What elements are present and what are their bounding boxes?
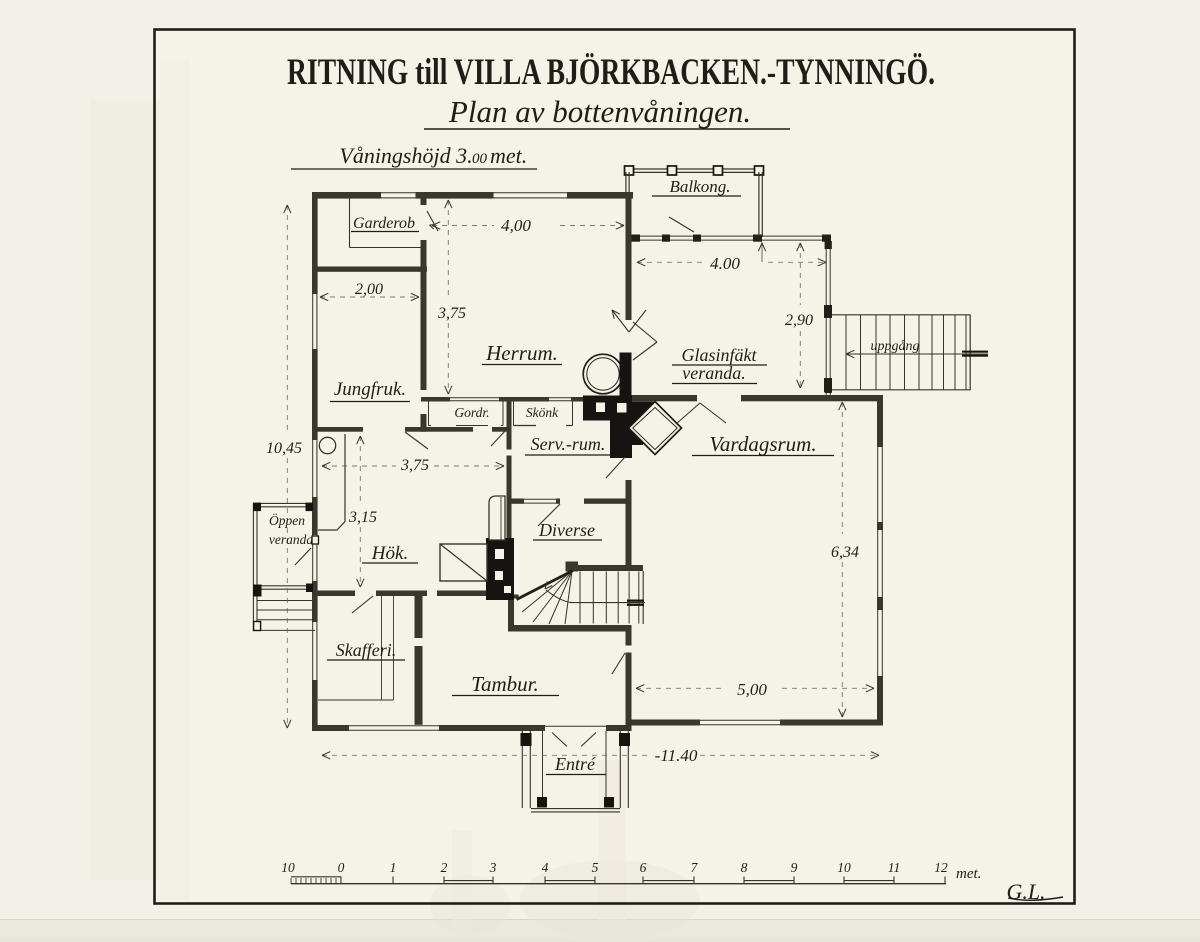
svg-text:10: 10 [837,860,851,875]
svg-text:5,00: 5,00 [737,680,767,699]
svg-text:4: 4 [542,860,549,875]
svg-text:Skönk: Skönk [526,405,559,420]
svg-text:RІTNІNG till VІLLA BJÖRKBACKEN: RІTNІNG till VІLLA BJÖRKBACKEN.-TYNNІNGÖ… [287,52,935,93]
svg-text:6: 6 [640,860,647,875]
svg-text:Plan av bottenvåningen.: Plan av bottenvåningen. [448,94,751,129]
svg-text:8: 8 [741,860,748,875]
svg-text:6,34: 6,34 [831,544,859,561]
svg-text:9: 9 [791,860,798,875]
svg-text:2,90: 2,90 [785,312,813,329]
svg-text:Öppen: Öppen [269,513,305,528]
svg-text:veranda: veranda [269,532,313,547]
svg-text:Jungfruk.: Jungfruk. [334,379,406,400]
svg-text:met.: met. [956,866,981,882]
svg-text:4,00: 4,00 [501,216,531,235]
svg-text:Skafferi.: Skafferi. [336,640,397,660]
svg-text:Hök.: Hök. [371,543,408,564]
svg-text:3,15: 3,15 [348,509,377,526]
svg-text:12: 12 [934,860,948,875]
svg-text:met.: met. [490,143,527,168]
svg-text:Gordr.: Gordr. [454,405,489,420]
svg-text:Balkong.: Balkong. [670,177,731,196]
svg-text:uppgång: uppgång [871,339,920,354]
svg-text:1: 1 [390,860,397,875]
svg-text:5: 5 [592,860,599,875]
svg-text:Entré: Entré [554,754,596,774]
svg-text:3,75: 3,75 [400,457,429,474]
svg-text:10: 10 [281,860,295,875]
svg-text:2,00: 2,00 [355,281,383,298]
svg-text:-11.40: -11.40 [655,746,698,765]
svg-text:11: 11 [888,860,901,875]
svg-text:Garderob: Garderob [353,215,415,232]
svg-text:Diverse: Diverse [538,520,595,540]
svg-text:10,45: 10,45 [266,440,302,457]
svg-text:3: 3 [489,860,497,875]
svg-text:0: 0 [338,860,345,875]
svg-text:veranda.: veranda. [682,363,745,383]
svg-text:Serv.-rum.: Serv.-rum. [531,434,606,454]
svg-text:3,75: 3,75 [437,305,466,322]
svg-text:Vardagsrum.: Vardagsrum. [709,432,816,456]
svg-text:00: 00 [472,151,488,167]
svg-text:Glasinfäkt: Glasinfäkt [682,345,758,365]
svg-text:Tambur.: Tambur. [471,672,539,696]
svg-text:Herrum.: Herrum. [485,341,558,365]
svg-text:2: 2 [441,860,448,875]
svg-text:Våningshöjd 3.: Våningshöjd 3. [339,143,472,168]
svg-text:4.00: 4.00 [710,254,740,273]
